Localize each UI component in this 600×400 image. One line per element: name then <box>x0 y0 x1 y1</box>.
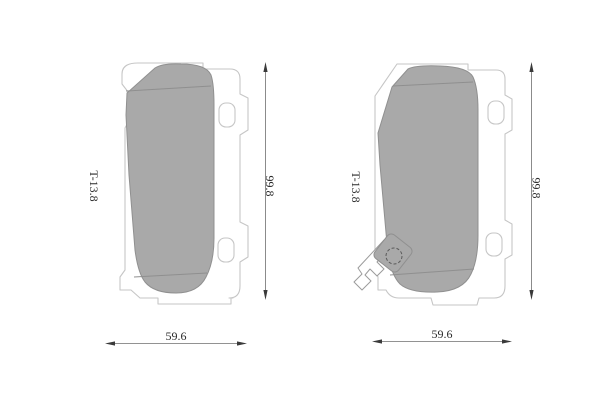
left-thickness-label: T-13.8 <box>87 170 101 201</box>
left-mounting-hole-top <box>219 103 235 127</box>
brake-pad-drawing: T-13.8 99.8 59.6 <box>0 0 600 400</box>
left-height-dimension: 99.8 <box>263 62 277 300</box>
left-width-label: 59.6 <box>166 329 187 343</box>
left-pad-view: T-13.8 99.8 59.6 <box>87 62 277 346</box>
right-thickness-label: T-13.8 <box>349 171 363 202</box>
right-width-arrow-left <box>372 339 382 343</box>
left-height-label: 99.8 <box>263 176 277 197</box>
drawing-canvas: T-13.8 99.8 59.6 <box>0 0 600 400</box>
right-mounting-hole-bottom <box>486 233 502 256</box>
right-pad-view: T-13.8 99.8 59.6 <box>349 62 544 344</box>
right-mounting-hole-top <box>488 101 504 124</box>
right-width-label: 59.6 <box>432 327 453 341</box>
left-height-arrow-up <box>263 62 267 72</box>
right-height-label: 99.8 <box>530 178 544 199</box>
right-height-arrow-up <box>529 62 533 72</box>
right-height-dimension: 99.8 <box>529 62 543 300</box>
left-width-dimension: 59.6 <box>105 329 247 346</box>
right-height-arrow-down <box>529 290 533 300</box>
left-width-arrow-right <box>237 341 247 345</box>
left-friction-material <box>126 64 214 293</box>
right-width-dimension: 59.6 <box>372 327 512 344</box>
left-height-arrow-down <box>263 290 267 300</box>
left-width-arrow-left <box>105 341 115 345</box>
left-mounting-hole-bottom <box>218 238 234 262</box>
right-width-arrow-right <box>502 339 512 343</box>
